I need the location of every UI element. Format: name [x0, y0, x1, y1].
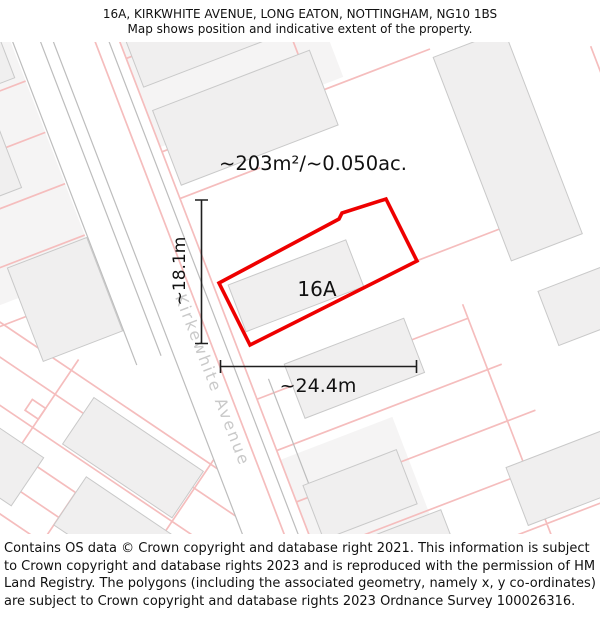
map-canvas: Kirkewhite Avenue ~18.1m ~24.4m ~203m²/~…: [0, 42, 600, 534]
map-header: 16A, KIRKWHITE AVENUE, LONG EATON, NOTTI…: [0, 0, 600, 42]
width-dimension-label: ~24.4m: [280, 375, 357, 397]
plot-number-label: 16A: [297, 277, 336, 301]
area-label: ~203m²/~0.050ac.: [219, 152, 407, 175]
property-map: Kirkewhite Avenue ~18.1m ~24.4m ~203m²/~…: [0, 42, 600, 534]
property-address-title: 16A, KIRKWHITE AVENUE, LONG EATON, NOTTI…: [0, 7, 600, 22]
map-subtitle: Map shows position and indicative extent…: [0, 22, 600, 37]
copyright-text: Contains OS data © Crown copyright and d…: [4, 541, 596, 609]
height-dimension-label: ~18.1m: [170, 237, 190, 306]
copyright-footer: Contains OS data © Crown copyright and d…: [0, 534, 600, 625]
